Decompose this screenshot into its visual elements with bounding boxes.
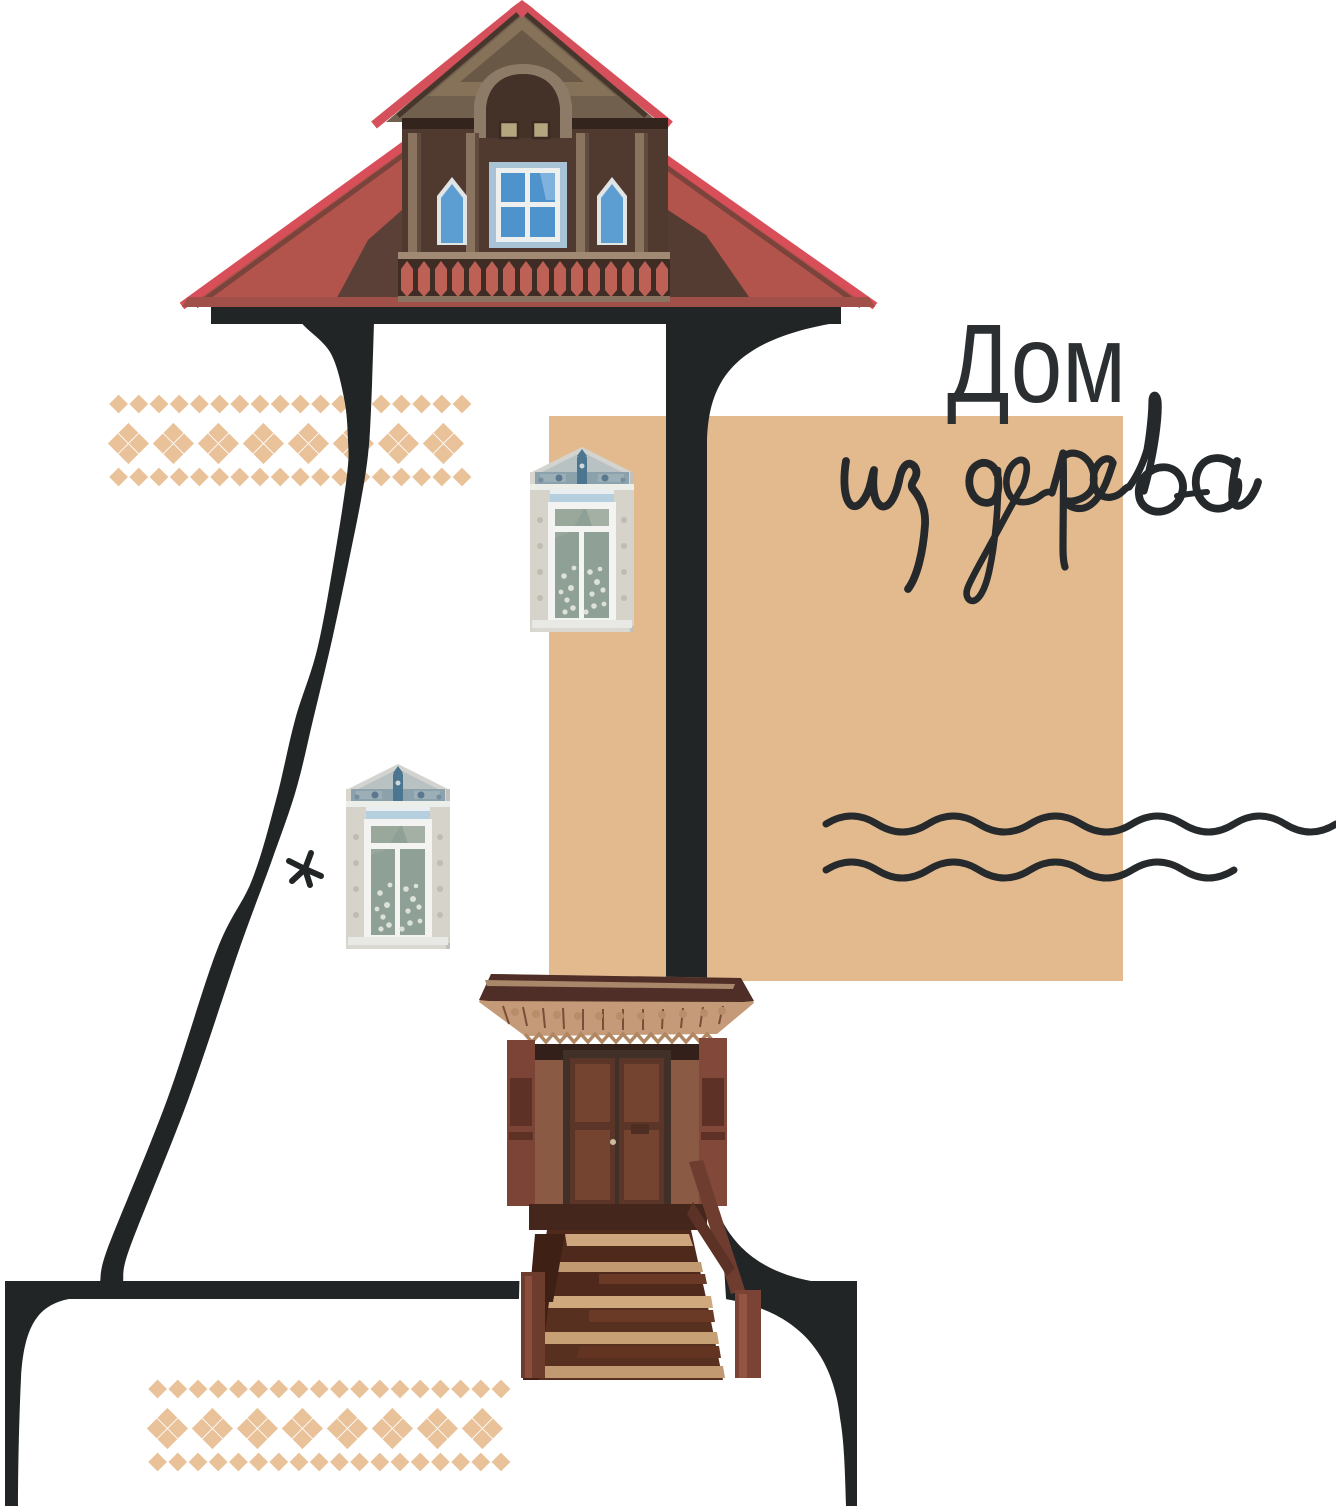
svg-text:Дом: Дом: [947, 302, 1126, 426]
